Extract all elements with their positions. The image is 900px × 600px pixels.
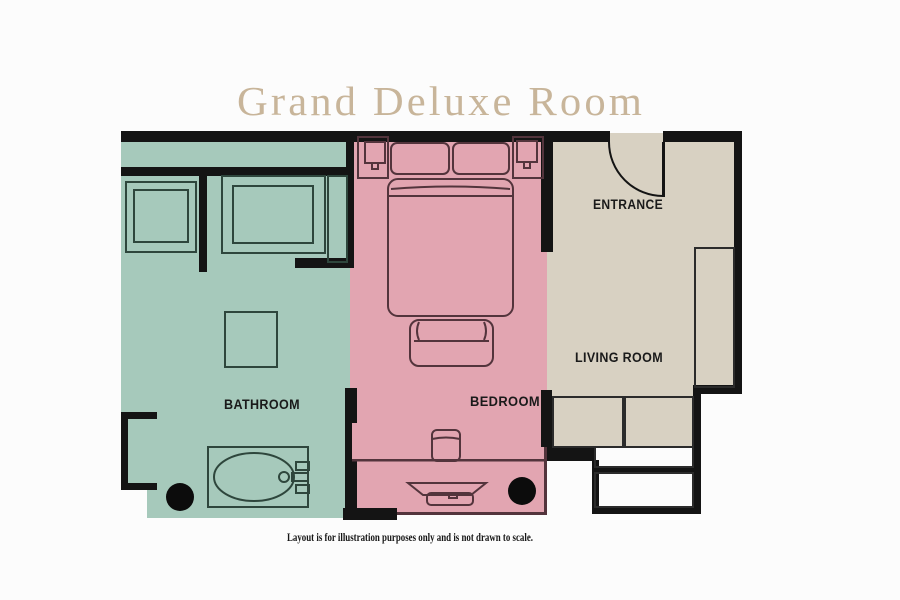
wall-bathroom-niche-bottom	[121, 483, 157, 490]
wall-sofa-left-bar	[547, 447, 595, 461]
wall-bedroom-living-lower	[541, 390, 552, 447]
bathroom-dot-marker	[166, 483, 194, 511]
wall-bathroom-interior	[199, 176, 207, 272]
wall-top-right	[663, 131, 742, 142]
bedroom-dot-marker	[508, 477, 536, 505]
entrance-label: ENTRANCE	[593, 197, 663, 212]
window-bench-lower	[595, 473, 693, 507]
entrance-door-leaf	[662, 142, 665, 197]
wall-right	[734, 131, 742, 393]
wall-bathroom-niche-left	[121, 412, 128, 490]
wall-bathroom-corridor	[121, 167, 354, 176]
bedroom-bottom-edge-line	[397, 512, 547, 515]
wall-living-right-lower	[693, 393, 701, 513]
wall-bathroom-bedroom-lower-a	[345, 388, 357, 423]
window-bench-upper	[595, 447, 693, 467]
page-title: Grand Deluxe Room	[237, 78, 645, 124]
corner-cutout	[121, 490, 147, 520]
wall-bedroom-bottom	[343, 508, 397, 520]
living-room-label: LIVING ROOM	[575, 350, 663, 365]
disclaimer-text: Layout is for illustration purposes only…	[287, 532, 533, 544]
bathroom-label: BATHROOM	[224, 397, 300, 412]
bedroom-right-edge-line	[544, 447, 547, 515]
floor-plan: Grand Deluxe Room	[0, 0, 900, 600]
bedroom-label: BEDROOM	[470, 394, 540, 409]
living-room-lower-floor	[550, 393, 693, 447]
bedroom-floor	[350, 133, 547, 515]
wall-bathroom-bedroom-lower-b	[345, 423, 352, 460]
